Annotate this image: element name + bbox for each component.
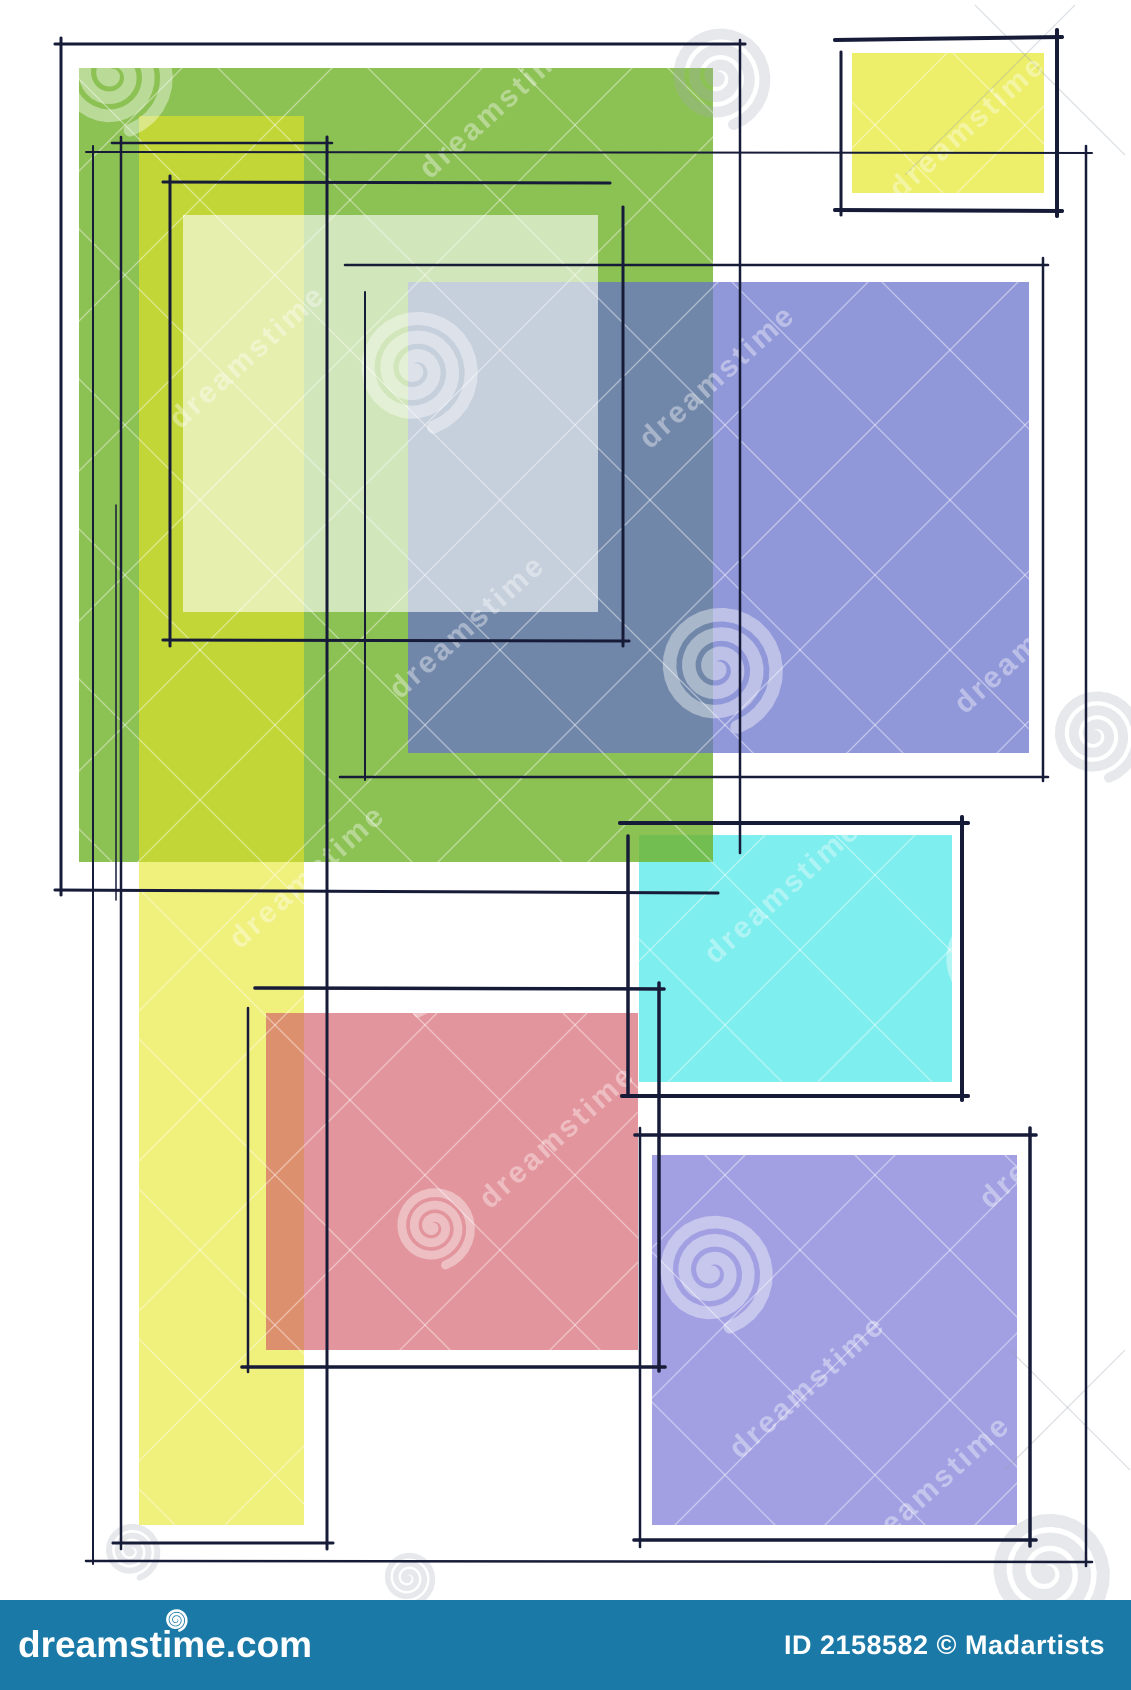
sketch-outline: [86, 152, 1092, 153]
artwork-canvas: dreamstimedreamstimedreamstimedreamstime…: [0, 0, 1131, 1690]
sketch-outline: [163, 182, 610, 183]
watermark-spiral-icon: [109, 1527, 157, 1578]
footer-bar: dreamstime.com ID 2158582 © Madartists: [0, 1600, 1131, 1690]
sketch-outline: [835, 210, 1062, 211]
watermark-spiral-icon: [1060, 696, 1131, 778]
sketch-outline: [255, 988, 664, 989]
watermark-spiral-icon: [372, 937, 444, 1013]
sketch-outline: [86, 1561, 1092, 1562]
artwork-svg: dreamstimedreamstimedreamstimedreamstime…: [0, 0, 1131, 1600]
sketch-outline: [163, 640, 629, 641]
watermark-spiral-icon: [953, 912, 1053, 1017]
logo-spiral-icon: [159, 1606, 193, 1636]
image-credit: ID 2158582 © Madartists: [784, 1630, 1105, 1661]
watermark-spiral-icon: [1000, 1520, 1103, 1600]
dreamstime-logo: dreamstime.com: [18, 1600, 312, 1690]
sketch-outline: [835, 37, 1062, 40]
